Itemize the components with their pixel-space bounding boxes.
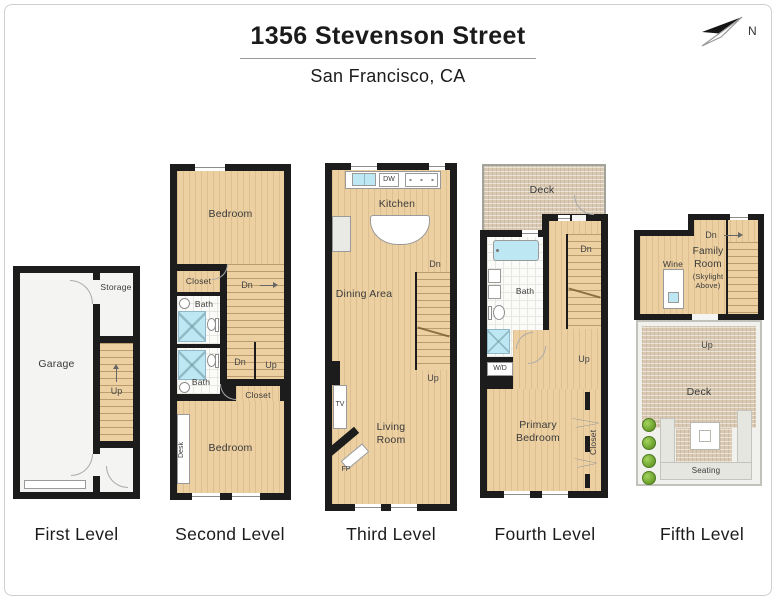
bath-label: Bath bbox=[508, 286, 542, 297]
stair-rail bbox=[415, 272, 417, 370]
dishwasher-label: DW bbox=[379, 176, 399, 185]
third-level-caption: Third Level bbox=[325, 524, 457, 545]
dn-label: Dn bbox=[572, 244, 600, 254]
page-title: 1356 Stevenson Street bbox=[240, 22, 535, 59]
desk-label: Desk bbox=[178, 422, 189, 478]
dn-label: Dn bbox=[700, 230, 722, 240]
stove-icon bbox=[405, 173, 438, 187]
fifth-level-caption: Fifth Level bbox=[634, 524, 770, 545]
door-opening-entry bbox=[93, 454, 100, 476]
header: 1356 Stevenson Street San Francisco, CA bbox=[0, 22, 776, 87]
first-level-caption: First Level bbox=[13, 524, 140, 545]
bath-upper-label: Bath bbox=[188, 299, 220, 310]
toilet-icon bbox=[207, 318, 216, 331]
toilet-icon bbox=[493, 305, 505, 320]
faucet-icon bbox=[496, 249, 499, 252]
page-subtitle: San Francisco, CA bbox=[0, 66, 776, 87]
floor-plan-fourth-level: Deck Bath W/D Dn Up Primary Bedroom Clos… bbox=[480, 164, 610, 498]
compass-n-label: N bbox=[748, 24, 757, 38]
window-primary bbox=[542, 491, 568, 498]
floor-plan-second-level: Bedroom Closet Bath Bath Dn Dn Up Closet… bbox=[170, 164, 291, 500]
wine-counter bbox=[663, 269, 684, 309]
storage-label: Storage bbox=[96, 282, 136, 293]
stair-direction-arrow bbox=[724, 235, 738, 236]
plant-icon bbox=[642, 436, 656, 450]
refrigerator bbox=[332, 216, 351, 252]
window-living bbox=[391, 504, 417, 511]
seating-label: Seating bbox=[678, 466, 734, 476]
wine-sink-icon bbox=[668, 292, 679, 303]
floor-plan-fifth-level: Dn Family Room (Skylight Above) Wine Up … bbox=[634, 214, 770, 500]
shower-icon bbox=[487, 329, 510, 354]
up-label: Up bbox=[419, 373, 447, 383]
second-level-caption: Second Level bbox=[165, 524, 295, 545]
bedroom-top-label: Bedroom bbox=[197, 208, 264, 221]
roof-deck-label: Deck bbox=[674, 386, 724, 399]
bedroom-bottom-label: Bedroom bbox=[197, 442, 264, 455]
window-living bbox=[355, 504, 381, 511]
plant-icon bbox=[642, 454, 656, 468]
up-arrow-head bbox=[113, 364, 119, 369]
plant-icon bbox=[642, 418, 656, 432]
closet-label: Closet bbox=[588, 412, 600, 472]
door-arc-bedroom-top bbox=[212, 264, 228, 280]
closet-wall bbox=[585, 392, 590, 410]
bathtub-icon bbox=[493, 240, 539, 261]
stair-direction-arrow-head bbox=[273, 282, 278, 288]
dn-label: Dn bbox=[421, 259, 449, 269]
closet-wall bbox=[585, 474, 590, 488]
fire-table-center bbox=[699, 430, 711, 442]
dn-label: Dn bbox=[228, 357, 252, 367]
fourth-level-caption: Fourth Level bbox=[478, 524, 612, 545]
washer-dryer-label: W/D bbox=[487, 365, 513, 374]
up-label: Up bbox=[100, 386, 133, 396]
window-primary bbox=[504, 491, 530, 498]
stair-rail bbox=[566, 234, 568, 329]
stair-divider bbox=[254, 342, 256, 379]
garage-door bbox=[24, 480, 86, 489]
up-arrow-line bbox=[116, 368, 117, 382]
kitchen-sink-icon bbox=[352, 173, 376, 186]
fire-table bbox=[690, 422, 720, 450]
window-family bbox=[730, 214, 748, 220]
up-label: Up bbox=[696, 340, 718, 350]
window-bedroom-bottom bbox=[192, 493, 220, 500]
primary-bedroom-label: Primary Bedroom bbox=[503, 419, 573, 445]
shower-icon bbox=[178, 311, 206, 342]
skylight-note: (Skylight Above) bbox=[683, 272, 733, 291]
dining-area-label: Dining Area bbox=[333, 288, 395, 301]
living-room-label: Living Room bbox=[361, 421, 421, 447]
dn-upper-label: Dn bbox=[236, 280, 258, 290]
window-kitchen bbox=[429, 163, 445, 170]
up-label: Up bbox=[259, 360, 283, 370]
door-arc-bedroom-bottom bbox=[220, 384, 236, 400]
up-label: Up bbox=[570, 354, 598, 364]
sink-icon bbox=[179, 382, 190, 393]
window-bath bbox=[522, 230, 538, 237]
plant-icon bbox=[642, 471, 656, 485]
wall-jog bbox=[332, 361, 340, 385]
kitchen-label: Kitchen bbox=[367, 198, 427, 211]
stairs-third-level bbox=[417, 272, 450, 370]
sink-icon bbox=[488, 269, 501, 283]
tv-label: TV bbox=[333, 401, 347, 410]
closet-right-label: Closet bbox=[232, 390, 284, 401]
stair-direction-arrow-head bbox=[738, 232, 743, 238]
north-arrow-icon: N bbox=[694, 10, 766, 58]
shower-icon bbox=[178, 350, 206, 380]
family-room-label: Family Room bbox=[685, 246, 731, 271]
stair-direction-arrow bbox=[260, 285, 273, 286]
sink-icon bbox=[488, 285, 501, 299]
fireplace-label: FP bbox=[335, 466, 357, 475]
window-bedroom-top bbox=[195, 164, 225, 171]
window-bedroom-bottom bbox=[232, 493, 260, 500]
window-kitchen bbox=[351, 163, 377, 170]
toilet-icon bbox=[207, 354, 216, 367]
garage-label: Garage bbox=[20, 358, 93, 371]
floor-plan-first-level: Garage Storage Up bbox=[13, 266, 140, 499]
toilet-tank-icon bbox=[488, 306, 492, 320]
deck-label: Deck bbox=[517, 184, 567, 197]
floor-plan-third-level: DW Kitchen Dining Area Dn Up TV FP Livin… bbox=[325, 163, 457, 511]
